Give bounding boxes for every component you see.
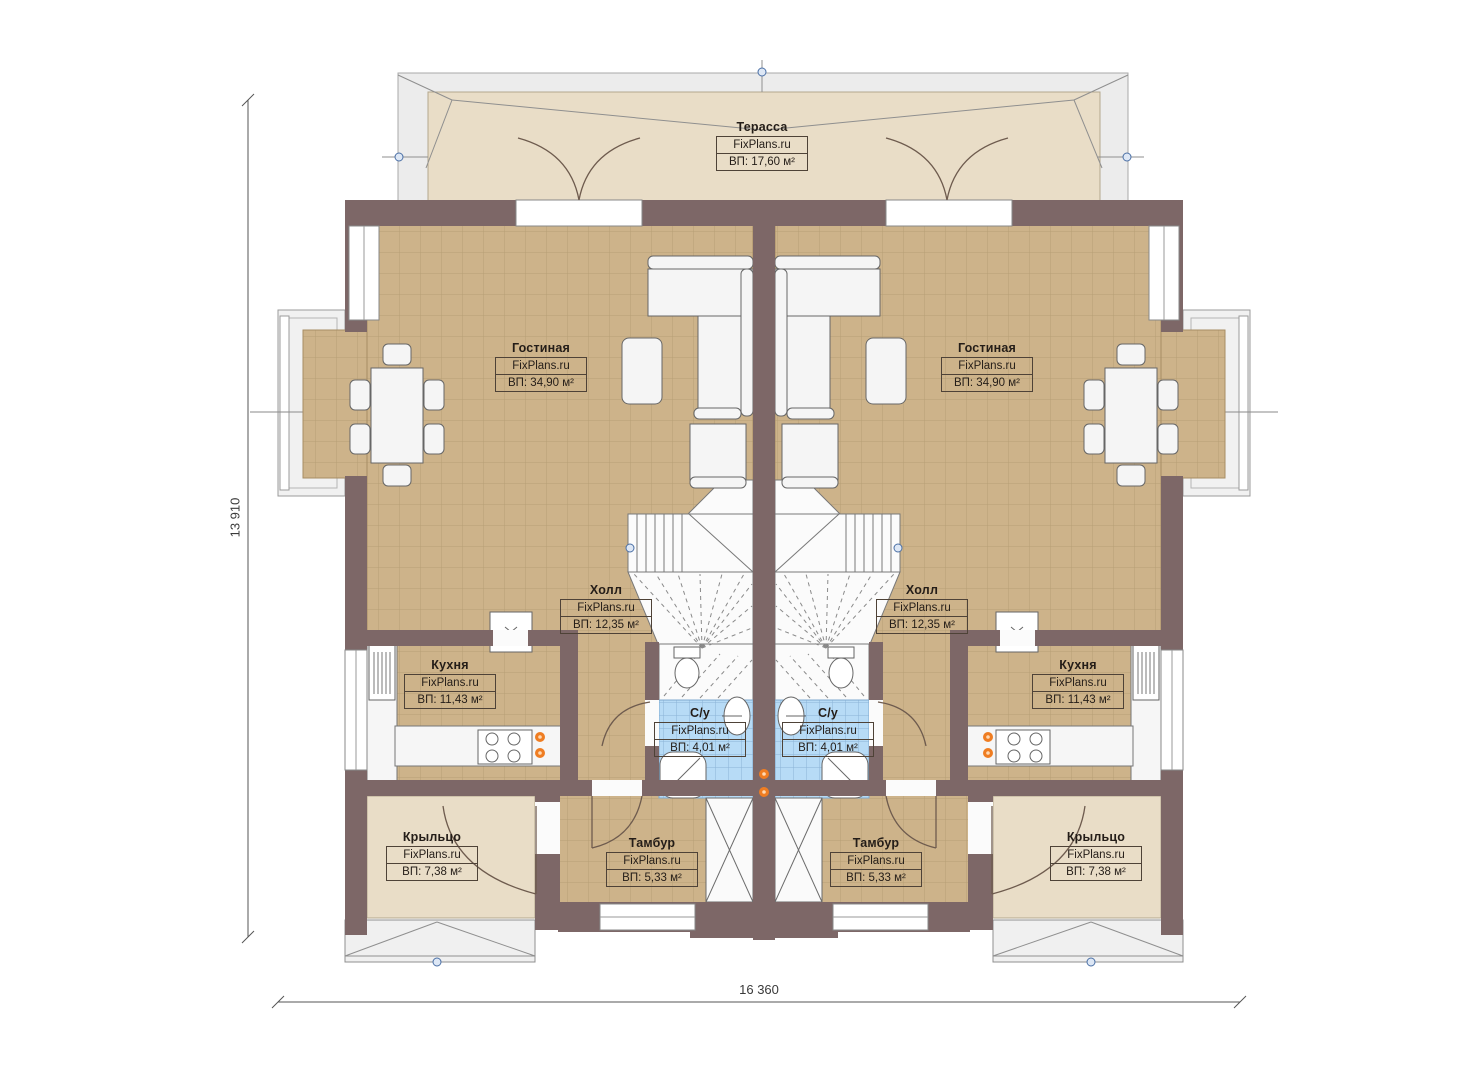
area-box: ВП: 34,90 м² [941, 374, 1033, 392]
brand-box: FixPlans.ru [1032, 674, 1124, 692]
door-opening [592, 780, 642, 796]
stove-icon [478, 730, 532, 764]
area-box: ВП: 7,38 м² [1050, 863, 1142, 881]
brand-box: FixPlans.ru [941, 357, 1033, 375]
room-label-hall-right: Холл FixPlans.ru ВП: 12,35 м² [876, 583, 968, 634]
area-box: ВП: 12,35 м² [876, 616, 968, 634]
party-wall [753, 200, 775, 940]
room-name: Холл [590, 583, 622, 597]
sofa-icon [775, 256, 880, 269]
room-label-porch-left: Крыльцо FixPlans.ru ВП: 7,38 м² [386, 830, 478, 881]
wardrobe-right [775, 798, 822, 902]
room-name: Гостиная [958, 341, 1016, 355]
brand-box: FixPlans.ru [876, 599, 968, 617]
area-box: ВП: 5,33 м² [606, 869, 698, 887]
brand-box: FixPlans.ru [606, 852, 698, 870]
room-name: Гостиная [512, 341, 570, 355]
room-label-kitchen-left: Кухня FixPlans.ru ВП: 11,43 м² [404, 658, 496, 709]
room-label-living-left: Гостиная FixPlans.ru ВП: 34,90 м² [495, 341, 587, 392]
room-label-tambour-right: Тамбур FixPlans.ru ВП: 5,33 м² [830, 836, 922, 887]
room-name: Крыльцо [1067, 830, 1125, 844]
room-label-kitchen-right: Кухня FixPlans.ru ВП: 11,43 м² [1032, 658, 1124, 709]
brand-box: FixPlans.ru [830, 852, 922, 870]
area-box: ВП: 11,43 м² [404, 691, 496, 709]
area-box: ВП: 5,33 м² [830, 869, 922, 887]
room-name: Кухня [1059, 658, 1097, 672]
room-name: Кухня [431, 658, 469, 672]
brand-box: FixPlans.ru [654, 722, 746, 740]
stove-icon [996, 730, 1050, 764]
porch-steps-left [345, 920, 535, 962]
room-name: С/у [818, 706, 838, 720]
coffee-table-icon [622, 338, 662, 404]
room-label-wc-right: С/у FixPlans.ru ВП: 4,01 м² [782, 706, 874, 757]
brand-box: FixPlans.ru [560, 599, 652, 617]
toilet-icon [828, 647, 854, 658]
room-label-wc-left: С/у FixPlans.ru ВП: 4,01 м² [654, 706, 746, 757]
area-box: ВП: 12,35 м² [560, 616, 652, 634]
dimension-height-label: 13 910 [228, 478, 243, 558]
area-box: ВП: 4,01 м² [654, 739, 746, 757]
room-label-tambour-left: Тамбур FixPlans.ru ВП: 5,33 м² [606, 836, 698, 887]
brand-box: FixPlans.ru [495, 357, 587, 375]
coffee-table-icon [866, 338, 906, 404]
room-name: С/у [690, 706, 710, 720]
area-box: ВП: 4,01 м² [782, 739, 874, 757]
door-opening [886, 780, 936, 796]
brand-box: FixPlans.ru [716, 136, 808, 154]
room-name: Холл [906, 583, 938, 597]
wardrobe-left [706, 798, 753, 902]
area-box: ВП: 11,43 м² [1032, 691, 1124, 709]
door-opening [535, 802, 560, 854]
terrace-door-left [516, 200, 642, 226]
room-label-living-right: Гостиная FixPlans.ru ВП: 34,90 м² [941, 341, 1033, 392]
room-name: Тамбур [853, 836, 900, 850]
dimension-width-label: 16 360 [739, 982, 779, 997]
room-name: Крыльцо [403, 830, 461, 844]
floor-plan-canvas: Терасса FixPlans.ru ВП: 17,60 м² Гостина… [0, 0, 1474, 1080]
room-name: Терасса [737, 120, 788, 134]
door-opening [493, 630, 528, 646]
toilet-icon [674, 647, 700, 658]
door-opening [1000, 630, 1035, 646]
brand-box: FixPlans.ru [1050, 846, 1142, 864]
room-name: Тамбур [629, 836, 676, 850]
brand-box: FixPlans.ru [404, 674, 496, 692]
area-box: ВП: 17,60 м² [716, 153, 808, 171]
area-box: ВП: 34,90 м² [495, 374, 587, 392]
armchair-icon [782, 424, 838, 480]
armchair-icon [690, 424, 746, 480]
brand-box: FixPlans.ru [782, 722, 874, 740]
area-box: ВП: 7,38 м² [386, 863, 478, 881]
porch-steps-right [993, 920, 1183, 962]
room-label-porch-right: Крыльцо FixPlans.ru ВП: 7,38 м² [1050, 830, 1142, 881]
terrace-door-right [886, 200, 1012, 226]
room-label-hall-left: Холл FixPlans.ru ВП: 12,35 м² [560, 583, 652, 634]
brand-box: FixPlans.ru [386, 846, 478, 864]
room-label-terrace: Терасса FixPlans.ru ВП: 17,60 м² [716, 120, 808, 171]
sofa-icon [648, 256, 753, 269]
door-opening [968, 802, 993, 854]
